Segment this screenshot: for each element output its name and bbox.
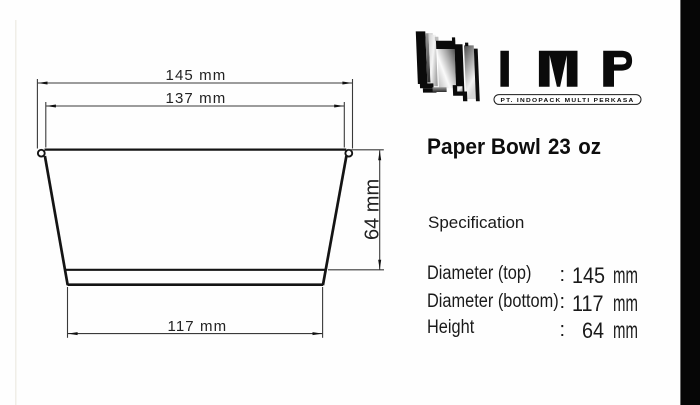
svg-text:64 mm: 64 mm [361, 179, 383, 240]
